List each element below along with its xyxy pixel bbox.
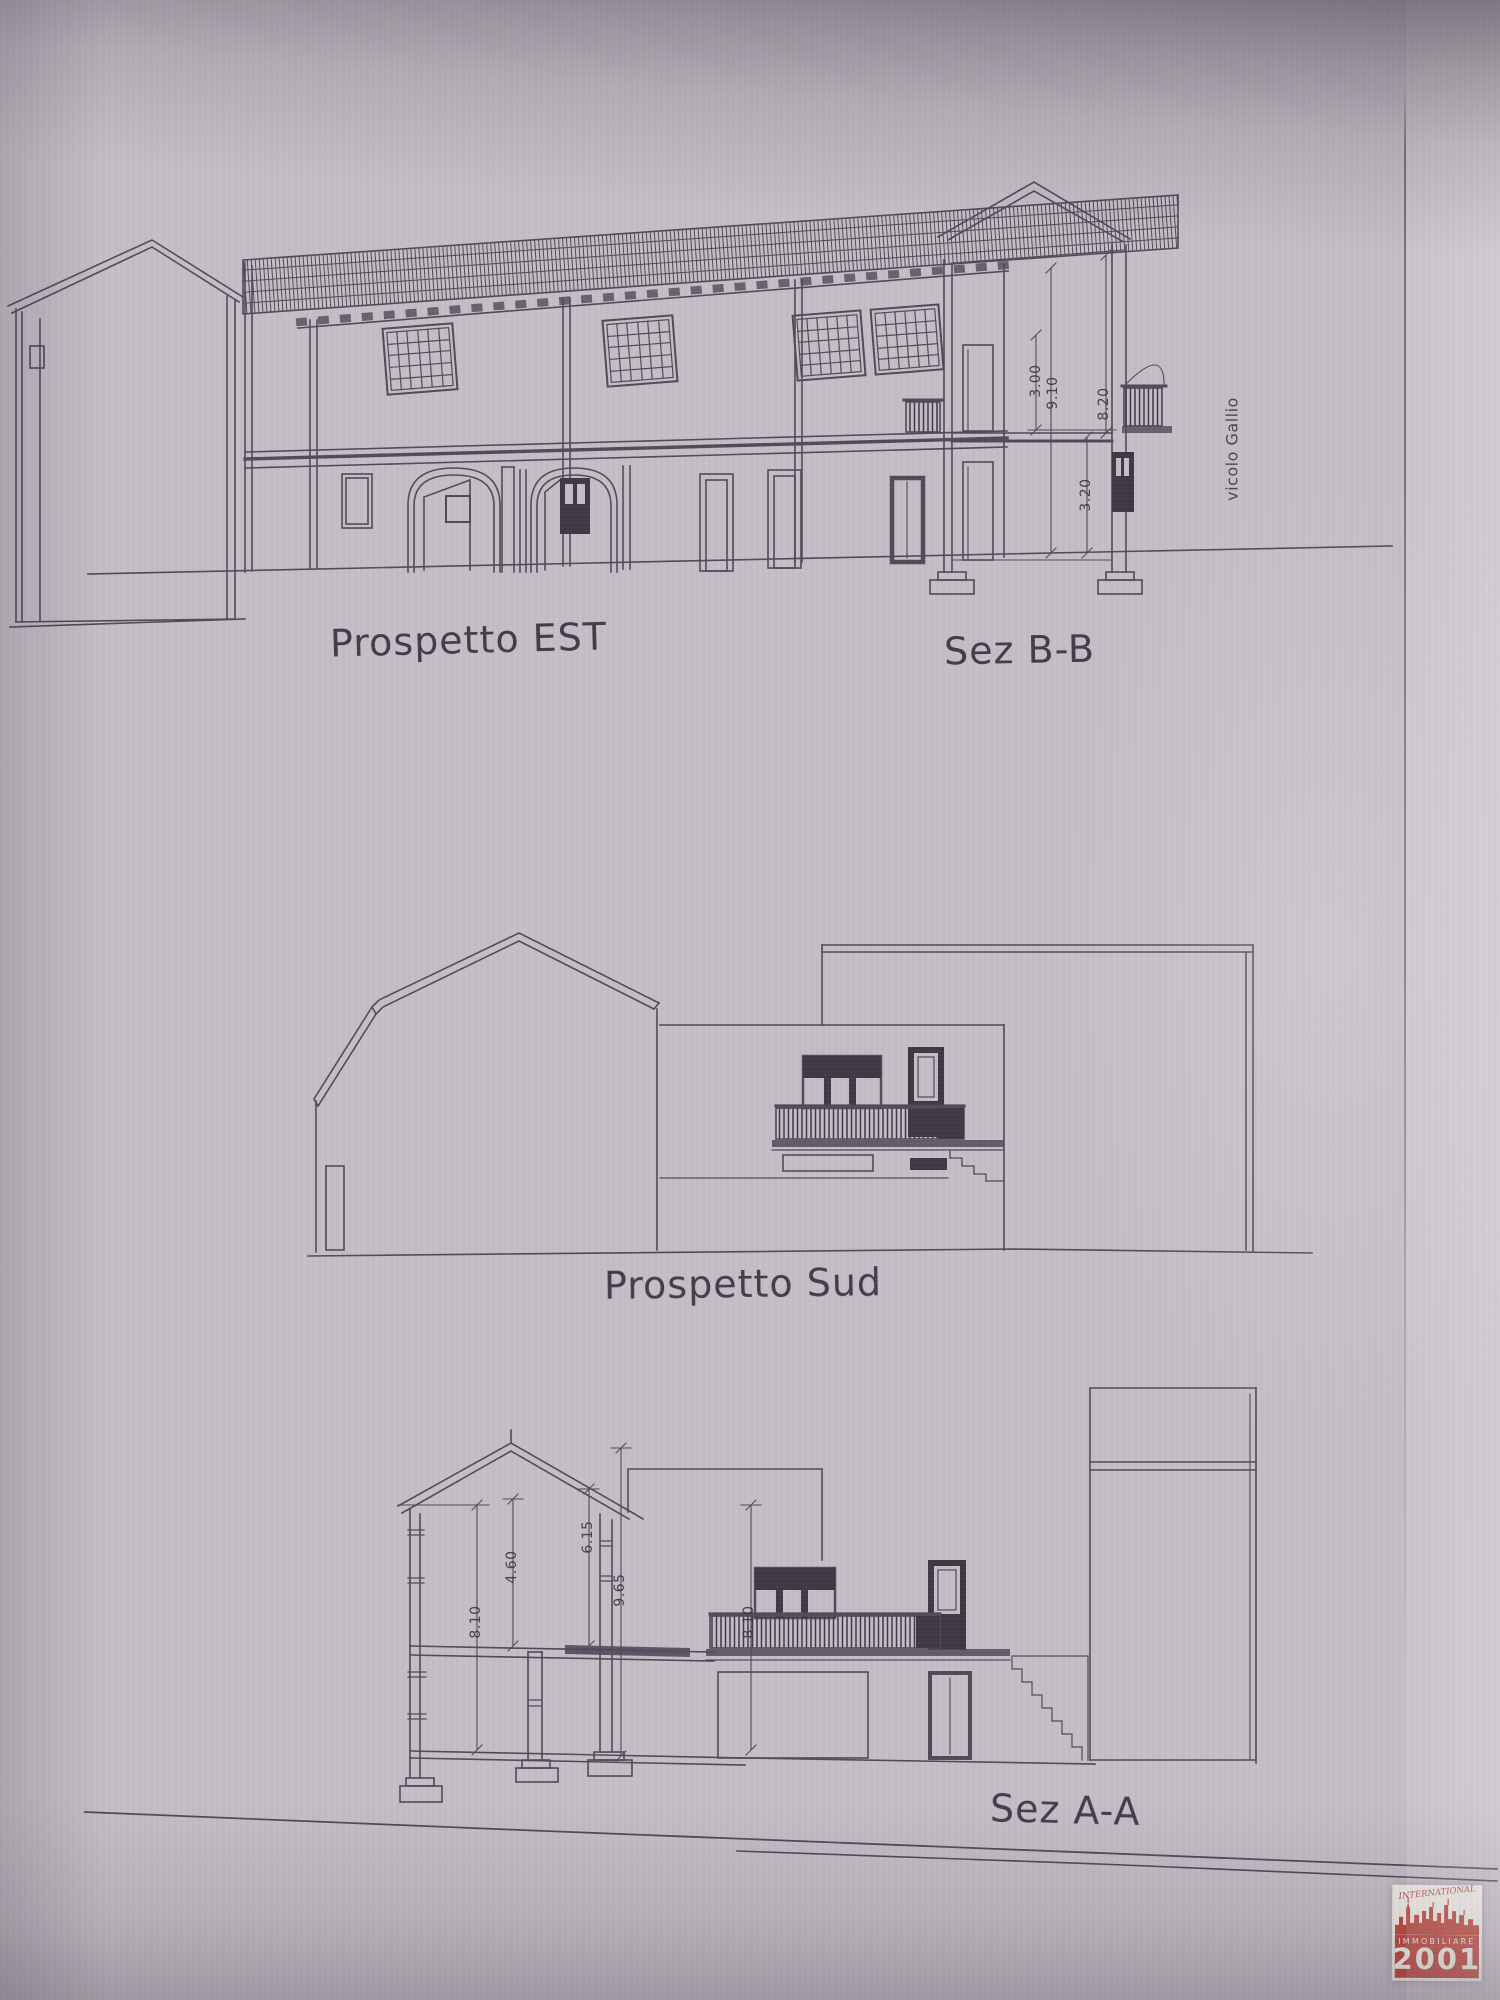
- label-prospetto-est: Prospetto EST: [329, 614, 607, 665]
- city-skyline-icon: [1395, 1895, 1479, 1935]
- label-sez-a-a: Sez A-A: [990, 1786, 1142, 1833]
- logo-2001-text: 2001: [1392, 1946, 1481, 1974]
- dim-8-10-left: 8.10: [468, 1605, 484, 1638]
- label-vicolo-gallio: vicolo Gallio: [1223, 397, 1242, 501]
- dim-3-20: 3.20: [1078, 478, 1094, 511]
- dim-8-20: 8.20: [1096, 387, 1112, 420]
- logo-red-band: IMMOBILIARE 2001: [1395, 1935, 1479, 1978]
- label-prospetto-sud: Prospetto Sud: [604, 1260, 883, 1308]
- dim-8-10-right: 8.10: [741, 1605, 757, 1638]
- dim-9-65: 9.65: [612, 1573, 628, 1606]
- agency-logo: INTERNATIONAL IMMOBILIARE 2001: [1392, 1885, 1483, 1981]
- photographed-blueprint-sheet: Prospetto EST Sez B-B Prospetto Sud Sez …: [0, 0, 1500, 2000]
- blueprint-linework: [0, 0, 1500, 2000]
- logo-skyline-panel: INTERNATIONAL: [1395, 1888, 1479, 1935]
- dim-4-60: 4.60: [504, 1550, 520, 1583]
- dim-6-15: 6.15: [580, 1520, 596, 1553]
- dim-9-10: 9.10: [1045, 376, 1061, 409]
- dim-3-00: 3.00: [1028, 364, 1044, 397]
- label-sez-b-b: Sez B-B: [944, 627, 1096, 674]
